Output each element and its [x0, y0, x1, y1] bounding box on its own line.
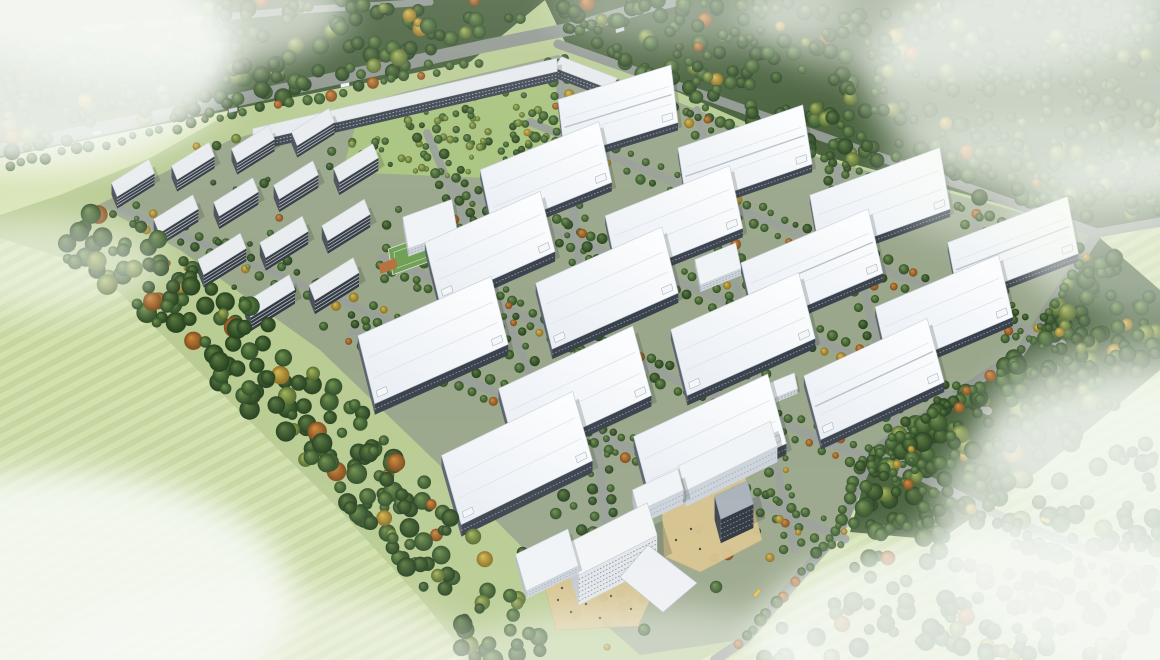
- atmosphere-overlay: [0, 0, 1160, 660]
- aerial-rendering: Aerial bird's-eye rendering of an indust…: [0, 0, 1160, 660]
- industrial-park-aerial-view: [0, 0, 1160, 660]
